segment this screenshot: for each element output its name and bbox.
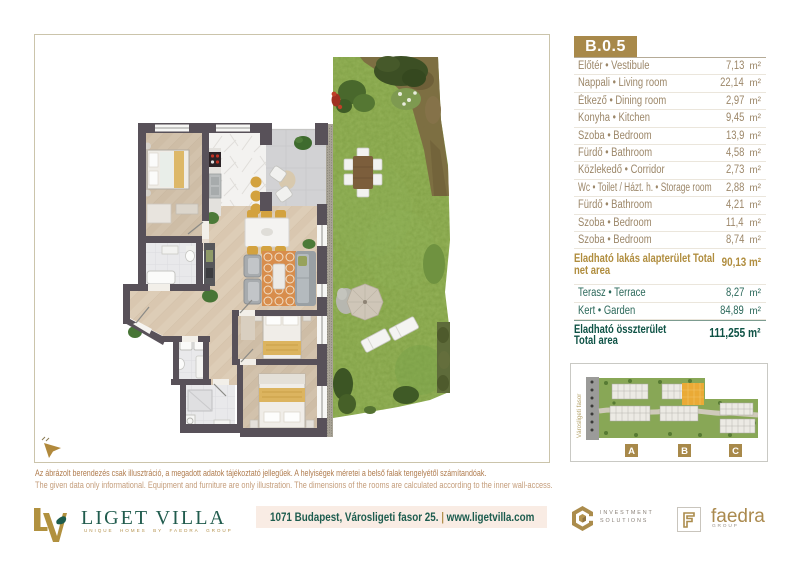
svg-text:C: C [732, 446, 739, 457]
svg-text:B: B [681, 446, 688, 457]
svg-text:A: A [628, 446, 635, 457]
svg-text:Városligeti fasor: Városligeti fasor [576, 394, 583, 438]
